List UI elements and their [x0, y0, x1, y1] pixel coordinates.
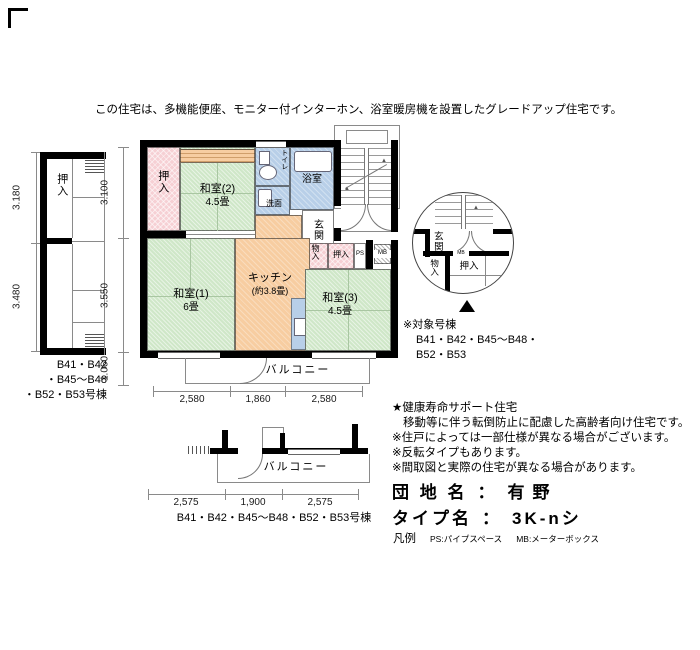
- dim-tick: [285, 386, 286, 397]
- room-size: 6畳: [147, 302, 235, 315]
- dim-label: 2,575: [161, 497, 211, 508]
- stair-rail: [461, 195, 466, 229]
- header-description: この住宅は、多機能便座、モニター付インターホン、浴室暖房機を設置したグレードアッ…: [95, 101, 622, 117]
- room-label: MB: [453, 250, 469, 256]
- closet-label: 押入: [54, 173, 68, 197]
- legend-row: 凡例 PS:パイプスペース MB:メーターボックス: [393, 530, 599, 546]
- dim-label: 3.100: [100, 176, 111, 210]
- dim-tick: [118, 385, 129, 386]
- room-label: 和室(2) 4.5畳: [180, 183, 255, 209]
- target-buildings-title: ※対象号棟: [403, 316, 456, 332]
- dim-line: [123, 147, 124, 386]
- site-name-value: 有野: [507, 478, 557, 503]
- room-name: キッチン: [235, 272, 305, 286]
- bathtub-icon: [294, 151, 332, 172]
- closet-shelf: [180, 149, 255, 163]
- wall: [140, 231, 186, 238]
- wall: [493, 229, 513, 234]
- room-label: 物入: [310, 244, 320, 260]
- dim-label: 1.060: [100, 352, 111, 386]
- left-plan-caption: B41・B42 ・B45〜B48 ・B52・B53号棟: [5, 358, 107, 403]
- wall: [140, 140, 337, 147]
- dim-label: 2,575: [295, 497, 345, 508]
- room-label: 洗面: [266, 199, 282, 209]
- dim-label: 3.180: [12, 181, 23, 215]
- wall: [140, 140, 147, 358]
- wall: [469, 251, 509, 256]
- wall-line: [72, 241, 105, 242]
- room-label: 押入: [453, 261, 485, 273]
- wall: [391, 140, 398, 232]
- closet-line: [72, 159, 73, 238]
- dim-tick: [118, 352, 129, 353]
- wall: [334, 228, 341, 241]
- pointer-triangle-icon: [459, 300, 475, 312]
- dim-tick: [148, 489, 149, 500]
- target-buildings-line: B52・B53: [416, 346, 466, 362]
- dim-tick: [362, 386, 363, 397]
- room-label: MB: [374, 250, 391, 258]
- dim-line: [153, 391, 362, 392]
- wall: [366, 240, 373, 269]
- note-support: ★健康寿命サポート住宅: [392, 399, 517, 415]
- dim-tick: [358, 489, 359, 500]
- dim-label: 2,580: [167, 394, 217, 405]
- site-name-label: 団 地 名: [392, 478, 467, 503]
- wall-line: [186, 234, 255, 235]
- toilet-bowl-icon: [259, 165, 277, 180]
- arrow-head-icon: ▲: [344, 186, 350, 192]
- dim-tick: [225, 489, 226, 500]
- room-label: 玄関: [431, 231, 443, 252]
- room-label: 押入: [328, 250, 354, 260]
- room-name: 和室(1): [147, 288, 235, 302]
- wall: [40, 152, 106, 159]
- wall-line: [485, 256, 486, 286]
- colon: ：: [482, 504, 502, 529]
- note-spec: ※住戸によっては一部仕様が異なる場合がございます。: [392, 429, 675, 445]
- window-hatch: [85, 160, 104, 174]
- wall: [40, 152, 47, 355]
- caption-line: ・B52・B53号棟: [5, 388, 107, 403]
- room-label: 押入: [155, 170, 169, 194]
- dim-tick: [118, 238, 129, 239]
- wall: [222, 430, 228, 448]
- dim-tick: [118, 147, 129, 148]
- caption-line: ・B45〜B48: [5, 373, 107, 388]
- window-hatch: [85, 334, 104, 347]
- type-name-value: 3K-nシ: [512, 504, 582, 529]
- caption-line: B41・B42: [5, 358, 107, 373]
- legend-ps: PS:パイプスペース: [430, 533, 502, 545]
- room-line: [72, 244, 73, 348]
- colon: ：: [477, 478, 497, 503]
- arrow-head-icon: ▲: [473, 205, 479, 211]
- wall: [40, 238, 72, 244]
- room-name: 和室(2): [180, 183, 255, 197]
- dim-tick: [282, 489, 283, 500]
- legend-label: 凡例: [393, 530, 416, 546]
- room-label: 和室(3) 4.5畳: [300, 292, 380, 318]
- dim-tick: [153, 386, 154, 397]
- dim-label: 2,580: [299, 394, 349, 405]
- lower-plan-caption: B41・B42・B45〜B48・B52・B53号棟: [168, 512, 380, 526]
- target-buildings-line: B41・B42・B45〜B48・: [416, 331, 538, 347]
- balcony-label: バルコニー: [248, 364, 348, 378]
- wall-line: [450, 275, 505, 276]
- room-line: [72, 322, 104, 323]
- room-name: 和室(3): [300, 292, 380, 306]
- room-label: 物入: [429, 259, 440, 276]
- room-label: 和室(1) 6畳: [147, 288, 235, 314]
- hallway: [255, 215, 302, 240]
- toilet-tank-icon: [259, 151, 270, 165]
- dim-label: 3.550: [100, 279, 111, 313]
- wall: [391, 240, 398, 358]
- dim-line: [148, 494, 358, 495]
- room-size: 4.5畳: [300, 306, 380, 319]
- dim-label: 3.480: [12, 280, 23, 314]
- corner-mark: [8, 8, 28, 11]
- note-support-detail: 移動等に伴う転倒防止に配慮した高齢者向け住宅です。: [403, 414, 689, 430]
- legend-mb: MB:メーターボックス: [516, 533, 599, 545]
- corner-mark: [8, 8, 11, 28]
- room-label: PS: [354, 251, 366, 259]
- site-name-row: 団 地 名 ： 有野: [392, 478, 557, 503]
- room-label: トイレ: [279, 149, 288, 170]
- room-size: (約3.8畳): [235, 286, 305, 297]
- window-hatch: [188, 446, 210, 454]
- note-mirrored: ※反転タイプもあります。: [392, 444, 527, 460]
- stair-landing-bay: [346, 130, 388, 144]
- room-label: 玄関: [310, 219, 323, 241]
- room-size: 4.5畳: [180, 197, 255, 210]
- note-difference: ※間取図と実際の住宅が異なる場合があります。: [392, 459, 642, 475]
- dim-label: 1,900: [228, 497, 278, 508]
- arrow-head-icon: ▲: [381, 158, 387, 164]
- window: [256, 141, 286, 148]
- dim-label: 1,860: [233, 394, 283, 405]
- wall: [334, 140, 341, 206]
- wall: [40, 348, 106, 355]
- dim-line: [36, 152, 37, 352]
- dim-tick: [230, 386, 231, 397]
- type-name-label: タイプ名: [392, 504, 472, 529]
- wall-line: [341, 231, 391, 232]
- wall: [280, 433, 285, 448]
- floorplan-sheet: この住宅は、多機能便座、モニター付インターホン、浴室暖房機を設置したグレードアッ…: [0, 0, 700, 650]
- detail-circle: ▲ 玄関 MB 物入 押入: [412, 192, 514, 294]
- wall: [352, 424, 358, 448]
- type-name-row: タイプ名 ： 3K-nシ: [392, 504, 582, 529]
- room-label: 浴室: [290, 174, 334, 187]
- balcony-label: バルコニー: [246, 461, 346, 475]
- room-label: キッチン (約3.8畳): [235, 272, 305, 297]
